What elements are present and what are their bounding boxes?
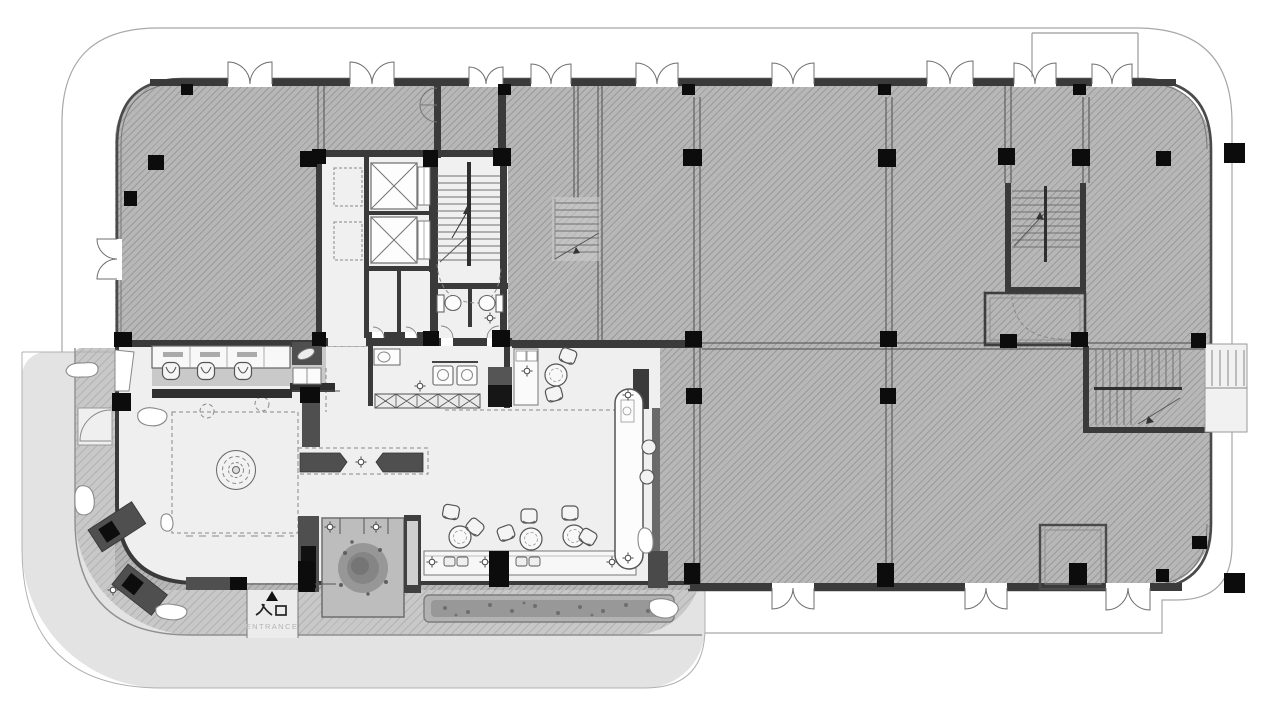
reception-desk [152,389,292,398]
floor-plan-canvas: ENTRANCE [0,0,1280,704]
lobby-feature [217,451,256,490]
lounge-table [545,364,567,386]
wall-pier [488,385,512,407]
elevator-1 [371,163,430,209]
bar-stool [642,440,656,454]
planting-strip [424,595,674,622]
reception-stool [163,363,180,380]
southeast-stair [1094,344,1247,432]
wall-pier [488,367,512,385]
stair-two [552,197,600,261]
north-stair [1012,186,1080,262]
entrance-label-en: ENTRANCE [246,622,298,631]
reception-stool [235,363,252,380]
reception-stool [198,363,215,380]
arrow-bench [300,453,347,472]
wall-pier [302,403,320,447]
arrow-bench [376,453,423,472]
service-door-gap [405,332,417,338]
elevator-2 [371,217,430,263]
service-door-gap [372,332,384,338]
bench [186,577,232,590]
floor-plan-drawing: ENTRANCE [0,0,1280,704]
floor-mat [375,394,480,408]
cafe-table [520,528,542,550]
feature-garden [298,515,421,617]
bar-stool [640,470,654,484]
